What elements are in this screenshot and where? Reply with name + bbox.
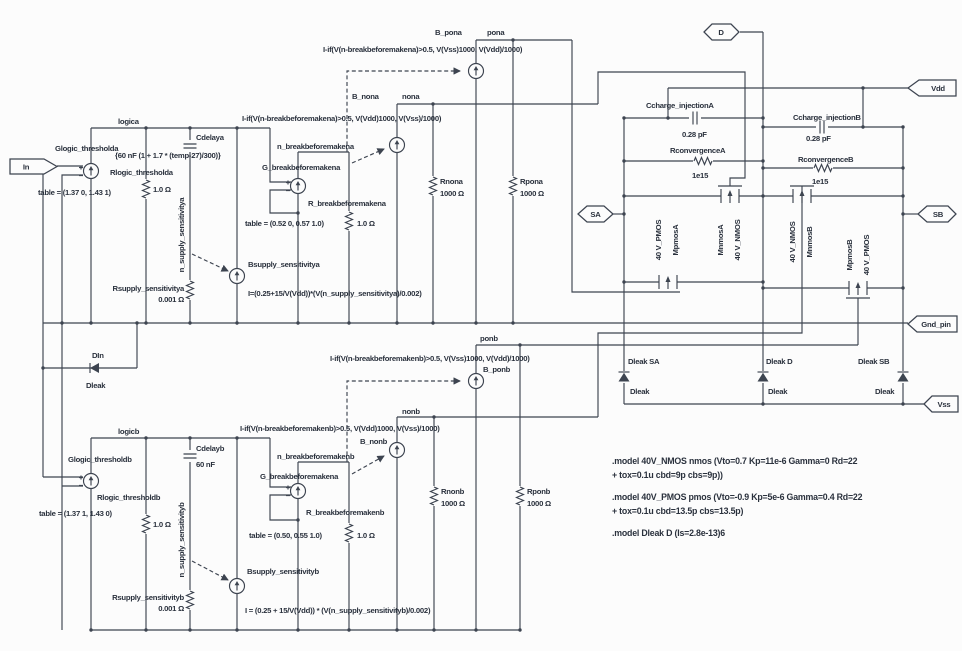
model-dleak-sb: Dleak	[875, 387, 895, 396]
formula-bnonb: I-if(V(n-breakbeforemakenb)>0.5, V(Vdd)1…	[240, 424, 440, 433]
value-rsupply-a: 0.001 Ω	[158, 295, 184, 304]
model-dleak-d: Dleak	[768, 387, 788, 396]
port-label-sa: SA	[590, 210, 601, 219]
value-rconvergence-b: 1e15	[812, 177, 829, 186]
port-label-vss: Vss	[938, 400, 951, 409]
label-rnona: Rnona	[440, 177, 464, 186]
label-glogic-b: Glogic_thresholdb	[68, 455, 132, 464]
mosfet-mpmosa	[656, 275, 680, 292]
label-mnmosb: MnmosB	[805, 226, 814, 258]
value-rnona: 1000 Ω	[440, 189, 464, 198]
port-gnd-pin: Gnd_pin	[908, 316, 957, 332]
port-vdd: Vdd	[908, 80, 956, 96]
value-rnonb: 1000 Ω	[441, 499, 465, 508]
resistor-rlogic-a	[141, 179, 151, 199]
port-sa: SA	[578, 206, 613, 222]
resistor-rnonb	[429, 486, 439, 506]
label-rlogic-b: Rlogic_thresholdb	[97, 493, 161, 502]
diode-dleak-d	[756, 371, 770, 382]
port-d: D	[704, 24, 739, 40]
label-rlogic-a: Rlogic_thresholda	[110, 168, 174, 177]
schematic-page: In D Vdd SA SB Gnd_pin Vss logica Glogic…	[0, 0, 962, 651]
model-line-dleak: .model Dleak D (Is=2.8e-13)6	[612, 528, 725, 538]
label-dleak-sa: Dleak SA	[628, 357, 660, 366]
label-dleak-sb: Dleak SB	[858, 357, 890, 366]
diode-dleak-sb	[896, 371, 910, 382]
label-rpona: Rpona	[520, 177, 544, 186]
type-label-mpmosb: 40 V_PMOS	[862, 235, 871, 276]
net-label-ponb: ponb	[480, 334, 498, 343]
mosfet-mnmosa	[718, 186, 742, 203]
formula-bnona: I-if(V(n-breakbeforemakena)>0.5, V(Vdd)1…	[242, 114, 442, 123]
type-label-mnmosb: 40 V_NMOS	[788, 221, 797, 262]
model-dleak-sa: Dleak	[630, 387, 650, 396]
value-cdelayb: 60 nF	[196, 460, 215, 469]
label-gbreak-b: G_breakbeforemakena	[260, 472, 339, 481]
value-rpona: 1000 Ω	[520, 189, 544, 198]
label-bpona: B_pona	[435, 28, 463, 37]
resistor-rsupply-b	[185, 590, 195, 610]
net-label-n-break-b: n_breakbeforemakenb	[277, 452, 355, 461]
resistor-rlogic-b	[141, 514, 151, 534]
mosfet-mpmosb	[846, 281, 870, 298]
value-rbreak-a: 1.0 Ω	[357, 219, 375, 228]
label-rsupply-b: Rsupply_sensitivityb	[112, 593, 184, 602]
label-mpmosa: MpmosA	[671, 224, 680, 256]
port-label-gnd-pin: Gnd_pin	[921, 320, 951, 329]
value-ccharge-b: 0.28 pF	[806, 134, 831, 143]
model-line-nmos-1: .model 40V_NMOS nmos (Vto=0.7 Kp=11e-6 G…	[612, 456, 858, 466]
label-bnonb: B_nonb	[360, 437, 388, 446]
label-ccharge-b: Ccharge_injectionB	[793, 113, 861, 122]
label-rnonb: Rnonb	[441, 487, 465, 496]
model-line-pmos-1: .model 40V_PMOS pmos (Vto=-0.9 Kp=5e-6 G…	[612, 492, 863, 502]
port-label-vdd: Vdd	[931, 84, 945, 93]
port-sb: SB	[918, 206, 956, 222]
diode-din	[90, 363, 99, 373]
capacitor-cdelayb	[183, 450, 197, 462]
label-bponb: B_ponb	[483, 365, 511, 374]
net-label-pona: pona	[487, 28, 505, 37]
port-in: In	[10, 159, 57, 174]
label-bsupply-b: Bsupply_sensitivityb	[247, 567, 319, 576]
label-mnmosa: MnmosA	[716, 224, 725, 256]
label-cdelaya: Cdelaya	[196, 133, 225, 142]
model-line-nmos-2: + tox=0.1u cbd=9p cbs=9p))	[612, 470, 723, 480]
net-label-nona: nona	[402, 92, 420, 101]
b-source-bpona	[469, 64, 484, 79]
capacitor-ccharge-a	[689, 111, 701, 125]
model-din: Dleak	[86, 381, 106, 390]
value-cdelaya: {60 nF (1 + 1.7 * (temp-27)/300)}	[115, 151, 221, 160]
b-source-bnonb	[390, 443, 405, 458]
net-label-n-break-a: n_breakbeforemakena	[277, 142, 355, 151]
value-rlogic-a: 1.0 Ω	[153, 185, 171, 194]
label-rsupply-a: Rsupply_sensitivitya	[113, 284, 185, 293]
model-statements: .model 40V_NMOS nmos (Vto=0.7 Kp=11e-6 G…	[612, 456, 863, 538]
b-source-gbreak-b	[286, 484, 306, 499]
table-gbreak-b: table = (0.50, 0.55 1.0)	[249, 531, 323, 540]
net-label-logica: logica	[118, 117, 140, 126]
resistor-rconvergence-a	[693, 156, 713, 166]
label-mpmosb: MpmosB	[845, 239, 854, 271]
resistor-rconvergence-b	[813, 163, 833, 173]
resistor-rponb	[515, 486, 525, 506]
label-rbreak-a: R_breakbeforemakena	[308, 199, 387, 208]
table-glogic-b: table = (1.37 1, 1.43 0)	[39, 509, 113, 518]
label-bsupply-a: Bsupply_sensitivitya	[248, 260, 320, 269]
table-glogic-a: table = (1.37 0, 1.43 1)	[38, 188, 112, 197]
label-rconvergence-b: RconvergenceB	[798, 155, 854, 164]
value-rbreak-b: 1.0 Ω	[357, 531, 375, 540]
diode-dleak-sa	[617, 371, 631, 382]
type-label-mnmosa: 40 V_NMOS	[733, 219, 742, 260]
labels-output-stage: Ccharge_injectionA 0.28 pF RconvergenceA…	[628, 101, 895, 396]
value-rconvergence-a: 1e15	[692, 171, 709, 180]
model-line-pmos-2: + tox=0.1u cbd=13.5p cbs=13.5p)	[612, 506, 743, 516]
label-rponb: Rponb	[527, 487, 551, 496]
port-label-in: In	[23, 163, 30, 172]
table-gbreak-a: table = (0.52 0, 0.57 1.0)	[245, 219, 324, 228]
b-source-bnona	[390, 138, 405, 153]
net-label-n-supply-b: n_supply_sensitivityb	[177, 502, 186, 578]
port-label-sb: SB	[933, 210, 944, 219]
type-label-mpmosa: 40 V_PMOS	[654, 220, 663, 261]
net-label-logicb: logicb	[118, 427, 140, 436]
capacitor-ccharge-b	[816, 120, 828, 134]
formula-bpona: I-if(V(n-breakbeforemakena)>0.5, V(Vss)1…	[323, 45, 523, 54]
b-source-bsupply-b	[230, 579, 245, 594]
resistor-rbreak-a	[344, 211, 354, 231]
value-rlogic-b: 1.0 Ω	[153, 520, 171, 529]
label-rbreak-b: R_breakbeforemakenb	[306, 508, 385, 517]
net-label-nonb: nonb	[402, 407, 420, 416]
resistor-rpona	[508, 176, 518, 196]
net-label-n-supply-a: n_supply_sensitivitya	[177, 197, 186, 273]
label-bnona: B_nona	[352, 92, 380, 101]
value-rsupply-b: 0.001 Ω	[158, 604, 184, 613]
b-source-gbreak-a	[286, 179, 306, 194]
resistor-rsupply-a	[185, 280, 195, 300]
b-source-bsupply-a	[230, 269, 245, 284]
label-rconvergence-a: RconvergenceA	[670, 146, 726, 155]
schematic-canvas: In D Vdd SA SB Gnd_pin Vss logica Glogic…	[0, 0, 962, 651]
b-source-bponb	[469, 374, 484, 389]
formula-bsupply-b: I = (0.25 + 15/V(Vdd)) * (V(n_supply_sen…	[245, 606, 431, 615]
label-din: DIn	[92, 351, 104, 360]
label-glogic-a: Glogic_thresholda	[55, 144, 119, 153]
value-ccharge-a: 0.28 pF	[682, 130, 707, 139]
resistor-rnona	[428, 176, 438, 196]
label-gbreak-a: G_breakbeforemakena	[262, 163, 341, 172]
value-rponb: 1000 Ω	[527, 499, 551, 508]
formula-bponb: I-if(V(n-breakbeforemakenb)>0.5, V(Vss)1…	[330, 354, 530, 363]
resistor-rbreak-b	[344, 523, 354, 543]
port-vss: Vss	[924, 396, 958, 412]
label-cdelayb: Cdelayb	[196, 444, 225, 453]
formula-bsupply-a: I=(0.25+15/V(Vdd))*(V(n_supply_sensitivi…	[248, 289, 422, 298]
label-ccharge-a: Ccharge_injectionA	[646, 101, 714, 110]
port-label-d: D	[718, 28, 724, 37]
label-dleak-d: Dleak D	[766, 357, 793, 366]
